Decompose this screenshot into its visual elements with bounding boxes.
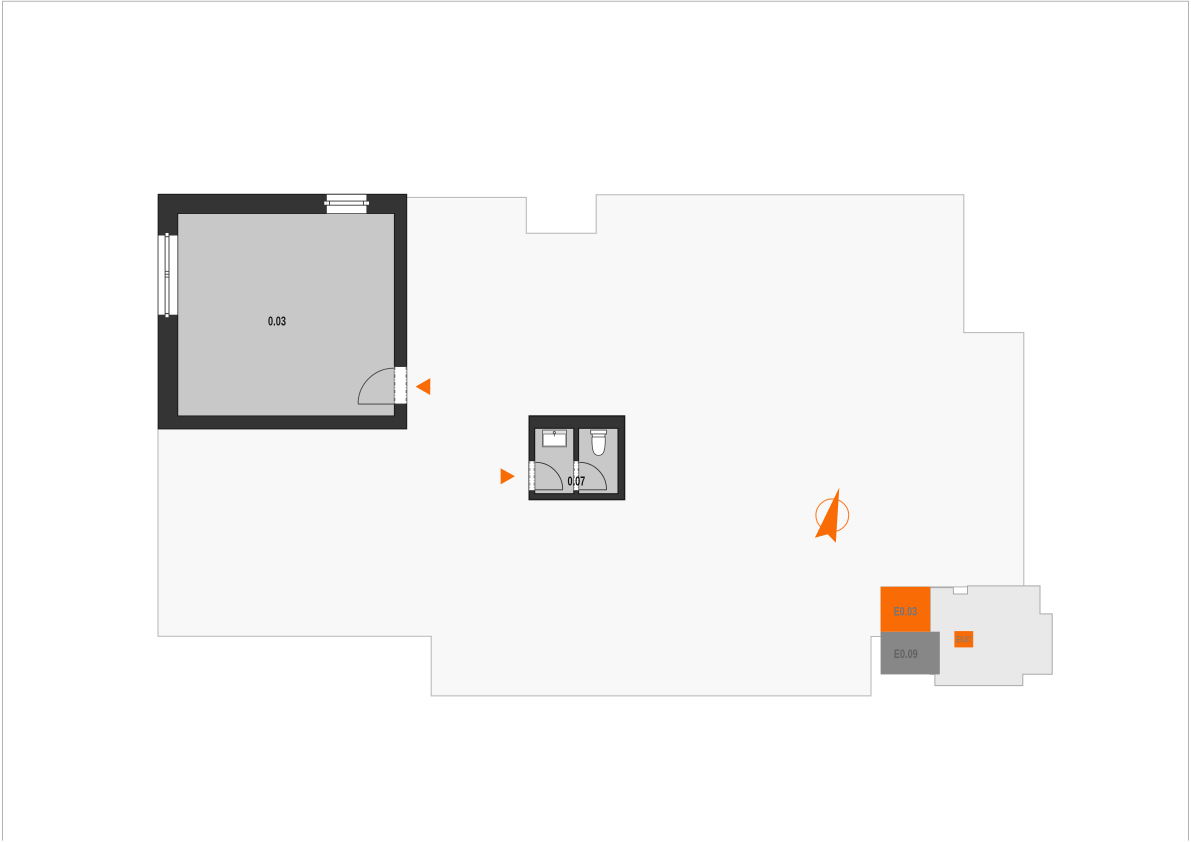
svg-text:E0.07: E0.07	[957, 634, 972, 644]
svg-text:0.03: 0.03	[268, 315, 286, 329]
svg-text:E0.09: E0.09	[894, 647, 918, 661]
svg-text:0.07: 0.07	[568, 474, 586, 488]
svg-text:E0.03: E0.03	[894, 605, 918, 619]
